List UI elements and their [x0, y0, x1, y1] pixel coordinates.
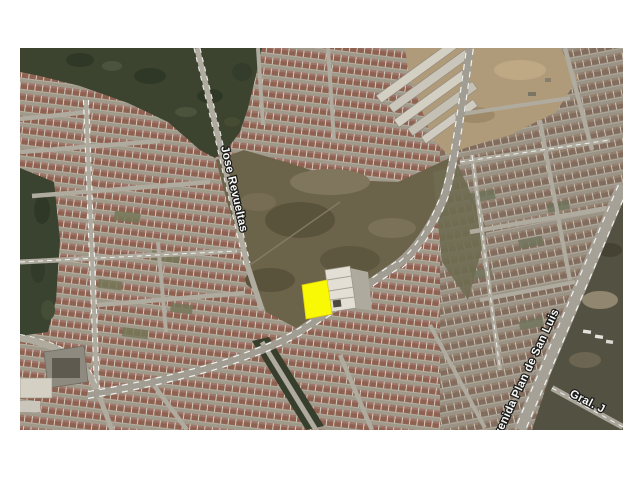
- satellite-map: Jose Revueltas Avenida Plan de San Luis …: [20, 48, 623, 430]
- photo-tint: [20, 48, 623, 430]
- photo-viewer-page: Jose Revueltas Avenida Plan de San Luis …: [0, 0, 640, 480]
- satellite-map-image: Jose Revueltas Avenida Plan de San Luis …: [20, 48, 623, 430]
